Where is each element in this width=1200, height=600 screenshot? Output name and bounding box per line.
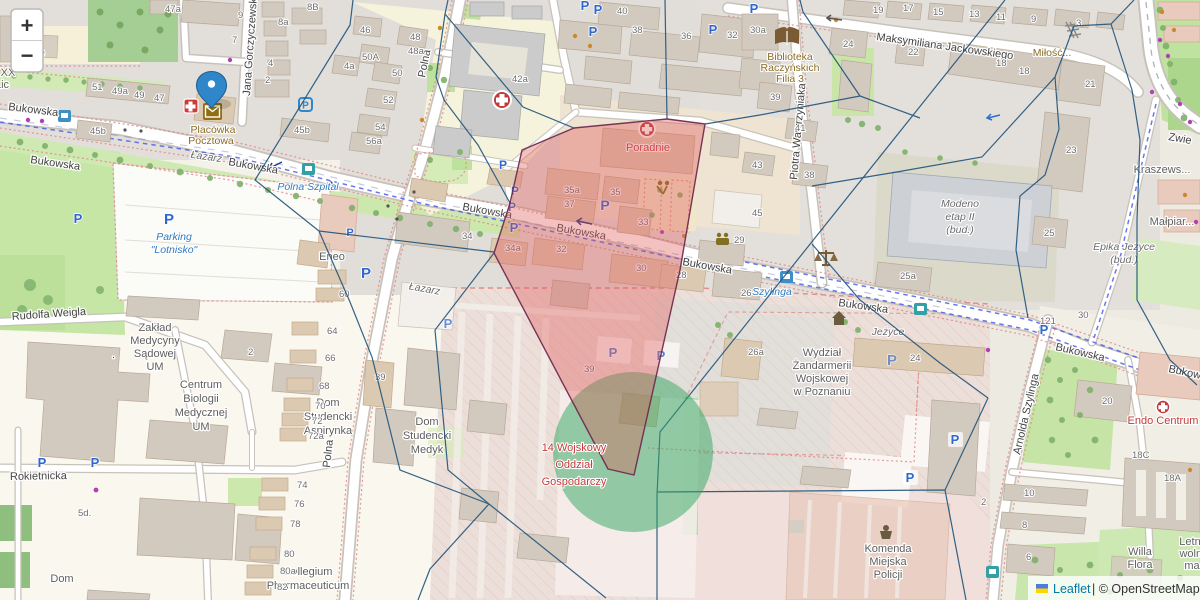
svg-text:47a: 47a: [165, 4, 182, 15]
svg-text:25: 25: [1044, 228, 1055, 239]
svg-text:P: P: [581, 0, 590, 13]
svg-text:Żandarmerii: Żandarmerii: [793, 359, 852, 372]
svg-text:51: 51: [92, 82, 103, 93]
svg-text:Parking: Parking: [156, 231, 192, 243]
svg-text:10: 10: [1024, 488, 1035, 499]
svg-text:48: 48: [410, 32, 421, 43]
svg-text:Oddział: Oddział: [555, 459, 593, 471]
svg-text:2: 2: [981, 497, 986, 508]
svg-text:21: 21: [1085, 79, 1096, 90]
svg-text:38: 38: [632, 25, 643, 36]
svg-text:41: 41: [795, 123, 806, 134]
svg-text:Zakład: Zakład: [138, 322, 171, 334]
svg-text:| © OpenStreetMap: | © OpenStreetMap: [1092, 582, 1200, 596]
svg-text:45b: 45b: [294, 125, 310, 136]
svg-text:24: 24: [843, 39, 854, 50]
svg-text:P: P: [74, 211, 83, 226]
svg-text:Rokietnicka: Rokietnicka: [10, 470, 68, 483]
svg-text:78: 78: [290, 519, 301, 530]
svg-text:2: 2: [265, 75, 270, 86]
svg-text:P: P: [951, 432, 960, 447]
svg-text:etap II: etap II: [945, 211, 974, 223]
svg-text:Modeno: Modeno: [941, 198, 979, 210]
svg-text:Letn: Letn: [1179, 536, 1200, 548]
svg-text:50A: 50A: [362, 52, 380, 63]
svg-text:Epika Jeżyce: Epika Jeżyce: [1093, 241, 1155, 253]
svg-text:54: 54: [375, 122, 386, 133]
svg-text:Kraszews...: Kraszews...: [1134, 164, 1191, 176]
svg-text:.: .: [112, 349, 115, 361]
svg-text:Medycznej: Medycznej: [175, 407, 228, 419]
svg-text:Gospodarczy: Gospodarczy: [542, 476, 607, 488]
svg-text:Medycyny: Medycyny: [130, 335, 180, 347]
svg-text:Wydział: Wydział: [803, 347, 842, 359]
svg-text:P: P: [361, 265, 371, 282]
svg-text:80: 80: [284, 549, 295, 560]
svg-text:13: 13: [969, 9, 980, 20]
svg-text:Dom: Dom: [50, 573, 73, 585]
svg-text:P: P: [709, 22, 718, 37]
svg-text:(bud.): (bud.): [1110, 254, 1137, 266]
svg-text:64: 64: [327, 326, 338, 337]
svg-text:50: 50: [392, 68, 403, 79]
svg-text:24: 24: [910, 353, 921, 364]
svg-text:3: 3: [1076, 18, 1081, 29]
svg-text:18: 18: [996, 58, 1007, 69]
svg-text:Flora: Flora: [1127, 559, 1153, 571]
svg-text:80a: 80a: [280, 566, 297, 577]
svg-text:45b: 45b: [90, 126, 106, 137]
svg-text:Sądowej: Sądowej: [134, 348, 176, 360]
svg-text:P: P: [499, 158, 507, 172]
svg-text:40: 40: [617, 6, 628, 17]
svg-text:Jeżyce: Jeżyce: [871, 326, 905, 338]
svg-text:30a: 30a: [750, 25, 767, 36]
svg-text:48a: 48a: [408, 46, 425, 57]
svg-text:49: 49: [134, 90, 145, 101]
svg-text:22: 22: [908, 47, 919, 58]
svg-text:76: 76: [294, 499, 305, 510]
svg-text:66: 66: [325, 353, 336, 364]
svg-text:Leaflet: Leaflet: [1053, 582, 1091, 596]
svg-text:Lic: Lic: [0, 79, 10, 91]
svg-text:42a: 42a: [512, 74, 529, 85]
svg-text:46: 46: [360, 25, 371, 36]
svg-text:P: P: [346, 227, 353, 239]
svg-text:+: +: [21, 13, 34, 38]
svg-text:Małpiar...: Małpiar...: [1150, 216, 1195, 228]
svg-text:P: P: [906, 470, 915, 485]
svg-text:Endo Centrum: Endo Centrum: [1128, 415, 1199, 427]
svg-text:5d.: 5d.: [78, 508, 91, 519]
svg-text:Dom: Dom: [415, 416, 438, 428]
svg-text:32: 32: [727, 30, 738, 41]
svg-text:56a: 56a: [366, 136, 383, 147]
svg-text:P: P: [589, 24, 598, 39]
svg-text:15: 15: [933, 7, 944, 18]
svg-text:23: 23: [1066, 145, 1077, 156]
svg-text:P: P: [887, 352, 897, 369]
svg-text:43: 43: [752, 160, 763, 171]
svg-text:52: 52: [383, 95, 394, 106]
svg-text:9: 9: [1031, 14, 1036, 25]
svg-text:Polna Szpital: Polna Szpital: [277, 181, 339, 193]
svg-text:68: 68: [319, 381, 330, 392]
svg-text:4: 4: [268, 58, 273, 69]
svg-text:17: 17: [903, 3, 914, 14]
svg-text:26a: 26a: [748, 347, 765, 358]
svg-text:P: P: [38, 455, 47, 470]
svg-text:20: 20: [1102, 396, 1113, 407]
svg-text:Policji: Policji: [874, 569, 903, 581]
svg-text:18C: 18C: [1132, 450, 1150, 461]
svg-text:30: 30: [1078, 310, 1089, 321]
svg-text:26: 26: [741, 288, 752, 299]
svg-text:w Poznaniu: w Poznaniu: [793, 386, 851, 398]
svg-text:Willa: Willa: [1128, 546, 1153, 558]
svg-text:Miejska: Miejska: [869, 556, 907, 568]
svg-text:8B: 8B: [307, 2, 319, 13]
svg-text:47: 47: [154, 93, 165, 104]
svg-text:9: 9: [238, 10, 243, 21]
svg-text:4a: 4a: [344, 61, 355, 72]
svg-text:36: 36: [681, 31, 692, 42]
svg-text:P: P: [750, 1, 759, 16]
svg-text:Komenda: Komenda: [864, 543, 912, 555]
svg-text:8a: 8a: [278, 17, 289, 28]
svg-text:(bud.): (bud.): [946, 224, 973, 236]
svg-text:ma: ma: [1184, 560, 1200, 572]
svg-text:121: 121: [1040, 316, 1056, 327]
svg-text:70: 70: [315, 401, 326, 412]
svg-text:7: 7: [232, 35, 237, 46]
svg-text:Wojskowej: Wojskowej: [796, 373, 848, 385]
svg-text:14 Wojskowy: 14 Wojskowy: [542, 442, 607, 454]
svg-text:18: 18: [1019, 66, 1030, 77]
svg-text:72a: 72a: [308, 431, 325, 442]
svg-text:wolni: wolni: [1178, 548, 1200, 560]
svg-text:2: 2: [248, 347, 253, 358]
svg-text:−: −: [21, 43, 34, 68]
svg-text:P: P: [164, 211, 174, 228]
svg-text:18A: 18A: [1164, 473, 1182, 484]
svg-text:82: 82: [277, 582, 288, 593]
svg-text:72: 72: [312, 416, 323, 427]
svg-text:74: 74: [297, 480, 308, 491]
svg-text:11: 11: [996, 12, 1006, 23]
svg-text:Biologii: Biologii: [183, 393, 218, 405]
svg-text:UM: UM: [192, 421, 209, 433]
svg-text:"Lotnisko": "Lotnisko": [151, 244, 199, 256]
svg-text:P: P: [444, 316, 453, 331]
svg-text:29: 29: [734, 235, 745, 246]
svg-text:Medyk: Medyk: [411, 444, 444, 456]
svg-text:Filia 3: Filia 3: [776, 73, 804, 85]
svg-text:Pocztowa: Pocztowa: [188, 135, 234, 147]
svg-text:P: P: [91, 455, 100, 470]
svg-text:45: 45: [752, 208, 763, 219]
svg-text:34: 34: [462, 231, 473, 242]
svg-text:19: 19: [873, 5, 884, 16]
svg-text:6: 6: [1026, 552, 1031, 563]
svg-text:8: 8: [1022, 520, 1027, 531]
svg-text:25a: 25a: [900, 271, 917, 282]
svg-text:Centrum: Centrum: [180, 379, 222, 391]
svg-text:49a: 49a: [112, 86, 129, 97]
svg-text:UM: UM: [146, 361, 163, 373]
svg-text:P: P: [594, 2, 603, 17]
svg-text:39: 39: [770, 92, 781, 103]
